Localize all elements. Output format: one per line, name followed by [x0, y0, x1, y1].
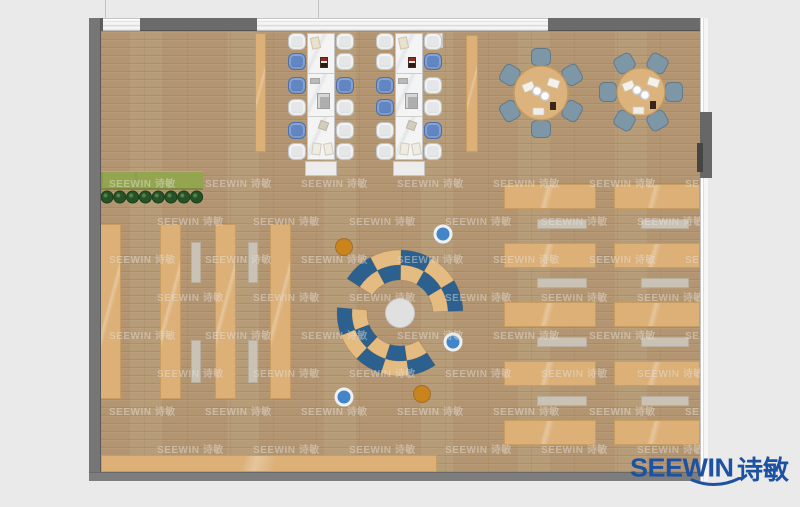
- plant-highlight: [180, 194, 184, 198]
- round-table-chair: [532, 49, 551, 66]
- brand-logo: SEEWIN 诗敏: [630, 450, 800, 495]
- round-table-chair: [666, 83, 683, 102]
- plant-highlight: [116, 194, 120, 198]
- plant: [165, 191, 177, 203]
- plant-highlight: [155, 194, 159, 198]
- wall-top-segment-2: [548, 18, 700, 31]
- window-band-top-1: [103, 18, 140, 31]
- table-paper: [633, 107, 644, 114]
- exterior-guide-line: [105, 0, 106, 18]
- table-paper: [533, 108, 544, 115]
- table-plate: [541, 92, 550, 101]
- plant: [191, 191, 203, 203]
- ottoman-blue: [445, 334, 461, 350]
- curved-furniture-layer: [0, 0, 800, 507]
- ottoman-orange: [336, 239, 353, 256]
- round-table-chair: [532, 121, 551, 138]
- plant-highlight: [104, 194, 108, 198]
- round-table-chair: [600, 83, 617, 102]
- plant: [101, 191, 113, 203]
- table-dark-item: [650, 101, 656, 109]
- lounge-sofa-segment: [381, 359, 409, 376]
- plant: [127, 191, 139, 203]
- door-leaf: [697, 143, 703, 172]
- wall-bottom: [89, 472, 712, 481]
- office-floor-plan: SEEWIN 诗敏SEEWIN 诗敏SEEWIN 诗敏SEEWIN 诗敏SEEW…: [0, 0, 800, 507]
- ottoman-blue: [336, 389, 352, 405]
- wall-right-glazing: [700, 18, 712, 481]
- plant: [139, 191, 151, 203]
- logo-swoosh: [690, 477, 742, 489]
- plant-highlight: [142, 194, 146, 198]
- table-dark-item: [550, 102, 556, 110]
- ottoman-blue: [435, 226, 451, 242]
- table-plate: [641, 91, 650, 100]
- plant: [114, 191, 126, 203]
- exterior-guide-line: [318, 0, 319, 18]
- plant-highlight: [193, 194, 197, 198]
- plant-highlight: [168, 194, 172, 198]
- wall-top-segment-1: [140, 18, 257, 31]
- window-band-top-2: [257, 18, 548, 31]
- wall-left: [89, 18, 101, 481]
- plant: [178, 191, 190, 203]
- ottoman-orange: [414, 386, 431, 403]
- plant: [152, 191, 164, 203]
- lounge-center-table: [386, 299, 415, 328]
- plant-highlight: [129, 194, 133, 198]
- brand-logo-chinese: 诗敏: [737, 450, 789, 487]
